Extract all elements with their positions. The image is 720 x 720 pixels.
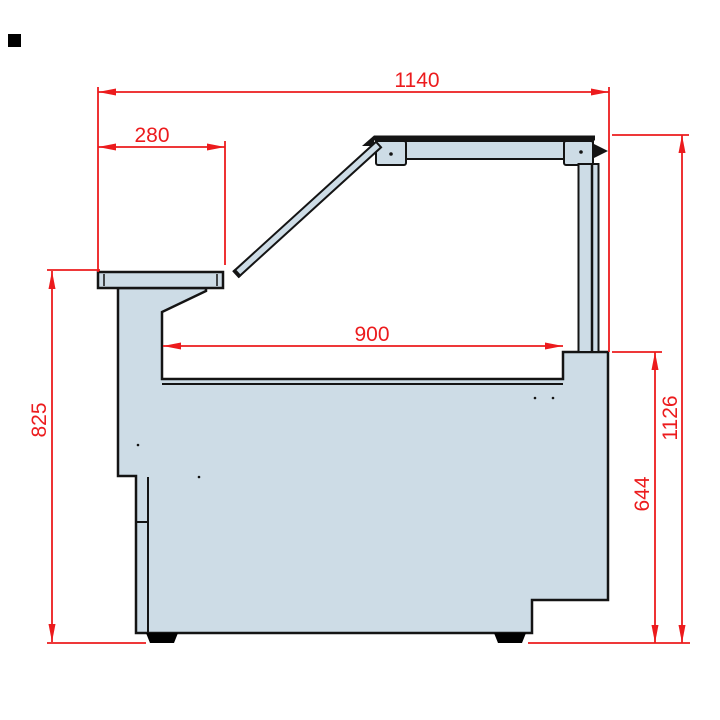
foot-rear — [494, 633, 526, 643]
arrow-1126-bottom — [679, 625, 686, 643]
dim-label-well-opening: 900 — [354, 323, 389, 346]
arrow-1126-top — [679, 135, 686, 153]
dim-label-rear-body-height: 644 — [631, 476, 654, 511]
dim-label-total-width: 1140 — [394, 69, 439, 92]
arrow-644-top — [652, 352, 659, 370]
corner-marker — [8, 34, 21, 47]
body-dot-1 — [137, 444, 140, 447]
left-bracket-screw — [389, 152, 393, 156]
dim-label-counter-height: 825 — [28, 402, 51, 437]
canopy-bar — [376, 141, 593, 159]
canopy-right-bracket — [564, 141, 593, 165]
right-bracket-screw — [579, 150, 583, 154]
dim-label-shelf-depth: 280 — [134, 124, 169, 147]
drawing-page: 1140 280 900 825 644 1126 — [0, 0, 720, 720]
front-glass-panel — [234, 142, 381, 277]
canopy-top-edge — [374, 136, 595, 141]
arrow-644-bottom — [652, 625, 659, 643]
arrow-1140-left — [98, 89, 116, 96]
canopy-right-tip — [594, 144, 608, 158]
body-dot-2 — [198, 476, 201, 479]
body-dot-4 — [552, 397, 555, 400]
foot-front — [146, 633, 178, 643]
body-dot-3 — [534, 397, 537, 400]
front-shelf — [98, 272, 223, 288]
rear-glass-panel — [579, 164, 599, 352]
arrow-280-left — [98, 144, 116, 151]
arrow-900-right — [545, 343, 563, 350]
arrow-825-bottom — [49, 624, 56, 642]
cabinet-profile — [98, 136, 608, 644]
arrow-280-right — [207, 144, 225, 151]
dim-label-overall-height: 1126 — [659, 395, 682, 440]
arrow-900-left — [163, 343, 181, 350]
arrow-825-top — [49, 271, 56, 289]
arrow-1140-right — [591, 89, 609, 96]
drawing-canvas: 1140 280 900 825 644 1126 — [0, 0, 720, 720]
